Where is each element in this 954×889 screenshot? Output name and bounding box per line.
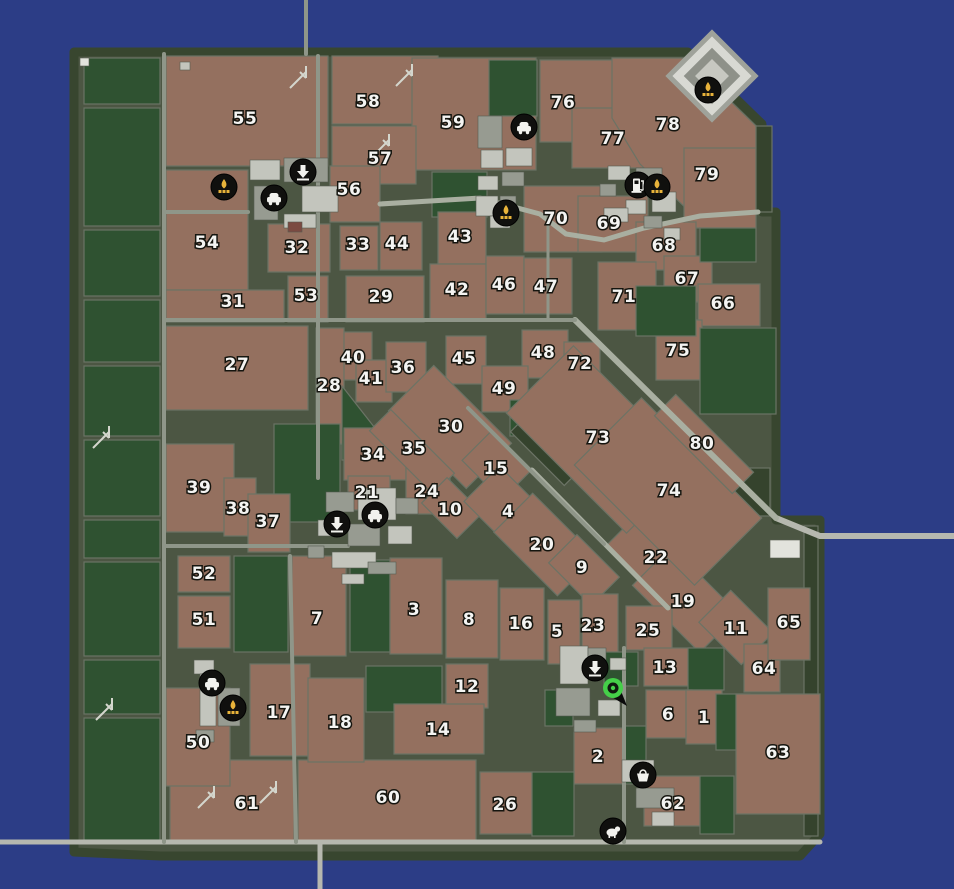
field-label-23: 23 (581, 616, 606, 636)
field-label-19: 19 (671, 592, 696, 612)
field-label-45: 45 (452, 349, 477, 369)
field-label-46: 46 (492, 275, 517, 295)
field-label-61: 61 (235, 794, 260, 814)
field-label-32: 32 (285, 238, 310, 258)
field-label-78: 78 (656, 115, 681, 135)
field-label-4: 4 (502, 502, 514, 522)
poi-vehicle-shop-icon[interactable] (511, 114, 537, 140)
meadow-parcel (84, 108, 160, 226)
building (478, 116, 502, 148)
meadow-parcel (84, 660, 160, 714)
field-label-8: 8 (463, 610, 475, 630)
poi-vehicle-shop-icon[interactable] (261, 185, 287, 211)
field-label-37: 37 (256, 512, 281, 532)
meadow-parcel (84, 58, 160, 104)
meadow-parcel (84, 718, 160, 840)
meadow-parcel (756, 126, 772, 212)
poi-grain-sell-icon[interactable] (220, 695, 246, 721)
meadow-parcel (700, 776, 734, 834)
field-label-76: 76 (551, 93, 576, 113)
building (80, 58, 89, 66)
field-label-3: 3 (408, 600, 420, 620)
building (652, 812, 674, 826)
field-label-70: 70 (544, 209, 569, 229)
field-label-44: 44 (385, 234, 410, 254)
field-label-59: 59 (441, 113, 466, 133)
field-label-31: 31 (221, 292, 246, 312)
poi-grain-sell-icon[interactable] (211, 174, 237, 200)
poi-grain-sell-icon[interactable] (644, 174, 670, 200)
building (626, 200, 646, 214)
building (342, 574, 364, 584)
field-label-57: 57 (368, 149, 393, 169)
field-label-10: 10 (438, 500, 463, 520)
building (478, 176, 498, 190)
poi-store-icon[interactable] (630, 762, 656, 788)
field-label-62: 62 (661, 794, 686, 814)
field-label-53: 53 (294, 286, 319, 306)
building (388, 526, 412, 544)
building (302, 186, 338, 212)
field-label-50: 50 (186, 733, 211, 753)
field-label-35: 35 (402, 439, 427, 459)
field-label-14: 14 (426, 720, 451, 740)
poi-vehicle-shop-icon[interactable] (362, 502, 388, 528)
meadow-parcel (84, 230, 160, 296)
meadow-parcel (489, 60, 537, 116)
field-label-56: 56 (337, 180, 362, 200)
meadow-parcel (234, 556, 288, 652)
field-label-48: 48 (531, 343, 556, 363)
field-label-77: 77 (601, 129, 626, 149)
field-label-18: 18 (328, 713, 353, 733)
meadow-parcel (84, 366, 160, 436)
field-label-72: 72 (568, 354, 593, 374)
field-label-68: 68 (652, 236, 677, 256)
field-label-55: 55 (233, 109, 258, 129)
field-label-2: 2 (592, 747, 604, 767)
field-label-71: 71 (612, 287, 637, 307)
building (368, 562, 396, 574)
meadow-parcel (688, 648, 724, 690)
map-canvas: 1234567891011121314151617181920212223242… (0, 0, 954, 889)
field-label-65: 65 (777, 613, 802, 633)
poi-grain-sell-icon[interactable] (493, 200, 519, 226)
field-label-74: 74 (657, 481, 682, 501)
field-label-7: 7 (311, 609, 323, 629)
field-label-24: 24 (415, 482, 440, 502)
building (250, 160, 280, 180)
poi-vehicle-shop-icon[interactable] (199, 670, 225, 696)
field-label-13: 13 (653, 658, 678, 678)
field-label-63: 63 (766, 743, 791, 763)
field-label-33: 33 (346, 235, 371, 255)
field-label-49: 49 (492, 379, 517, 399)
field-label-58: 58 (356, 92, 381, 112)
building (502, 172, 524, 186)
field-label-29: 29 (369, 287, 394, 307)
field-label-80: 80 (690, 434, 715, 454)
field-label-38: 38 (226, 499, 251, 519)
field-label-5: 5 (551, 622, 563, 642)
field-label-6: 6 (662, 705, 674, 725)
poi-grain-sell-icon[interactable] (695, 77, 721, 103)
field-label-11: 11 (724, 619, 749, 639)
building (481, 150, 503, 168)
field-label-1: 1 (698, 708, 710, 728)
meadow-parcel (700, 228, 756, 262)
building (610, 658, 626, 670)
field-label-26: 26 (493, 795, 518, 815)
field-label-69: 69 (597, 214, 622, 234)
field-label-40: 40 (341, 348, 366, 368)
field-label-54: 54 (195, 233, 220, 253)
field-label-15: 15 (484, 459, 509, 479)
building (600, 184, 616, 196)
meadow-parcel (636, 286, 696, 336)
building (556, 688, 590, 716)
field-label-36: 36 (391, 358, 416, 378)
field-label-16: 16 (509, 614, 534, 634)
field-label-43: 43 (448, 227, 473, 247)
field-label-30: 30 (439, 417, 464, 437)
poi-animal-dealer-icon[interactable] (600, 818, 626, 844)
field-label-25: 25 (636, 621, 661, 641)
building (180, 62, 190, 70)
building (598, 700, 620, 716)
field-label-42: 42 (445, 280, 470, 300)
field-label-73: 73 (586, 428, 611, 448)
meadow-parcel (84, 520, 160, 558)
field-label-52: 52 (192, 564, 217, 584)
field-label-66: 66 (711, 294, 736, 314)
poi-unload-point-icon[interactable] (582, 655, 608, 681)
building (506, 148, 532, 166)
map-screen: 1234567891011121314151617181920212223242… (0, 0, 954, 889)
field-label-17: 17 (267, 703, 292, 723)
field-label-67: 67 (675, 269, 700, 289)
field-label-41: 41 (359, 369, 384, 389)
field-label-27: 27 (225, 355, 250, 375)
field-label-12: 12 (455, 677, 480, 697)
building (574, 720, 596, 732)
field-label-9: 9 (576, 558, 588, 578)
building (644, 216, 662, 228)
poi-unload-point-icon[interactable] (324, 511, 350, 537)
meadow-parcel (84, 300, 160, 362)
poi-unload-point-icon[interactable] (290, 159, 316, 185)
field-parcel (292, 556, 346, 656)
building (288, 222, 302, 232)
field-label-28: 28 (317, 376, 342, 396)
building (326, 492, 354, 512)
field-label-60: 60 (376, 788, 401, 808)
field-label-75: 75 (666, 341, 691, 361)
field-label-39: 39 (187, 478, 212, 498)
field-label-51: 51 (192, 610, 217, 630)
field-label-21: 21 (355, 483, 380, 503)
field-label-34: 34 (361, 445, 386, 465)
building (308, 546, 324, 558)
field-label-79: 79 (695, 165, 720, 185)
building (770, 540, 800, 558)
meadow-parcel (84, 440, 160, 516)
field-label-22: 22 (644, 548, 669, 568)
meadow-parcel (84, 562, 160, 656)
field-label-47: 47 (534, 277, 559, 297)
field-label-20: 20 (530, 535, 555, 555)
meadow-parcel (532, 772, 574, 836)
meadow-parcel (700, 328, 776, 414)
field-label-64: 64 (752, 659, 777, 679)
